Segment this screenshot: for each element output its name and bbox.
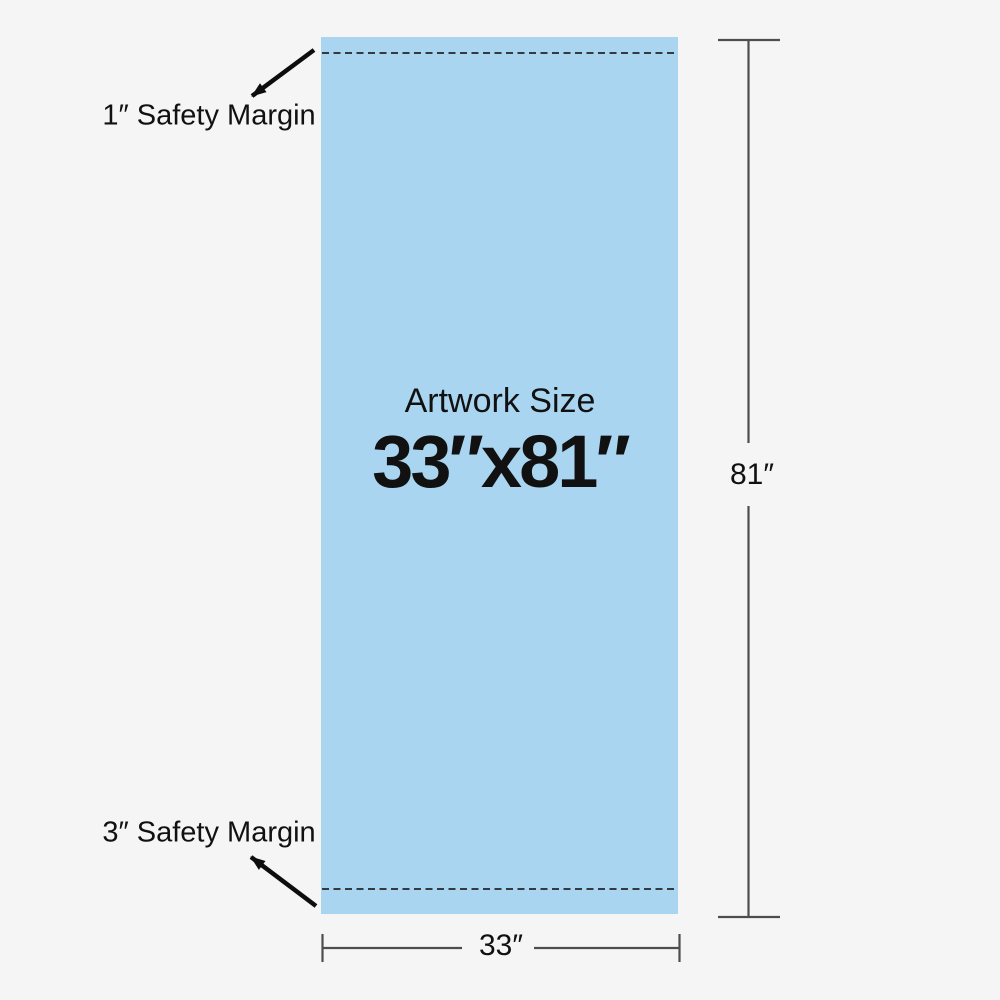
height-dimension-label: 81″ — [730, 460, 774, 490]
top-safety-margin-label: 1″ Safety Margin — [102, 102, 315, 131]
top-margin-arrow — [252, 50, 314, 96]
bottom-margin-arrow — [251, 857, 316, 906]
artwork-title: Artwork Size — [405, 384, 596, 418]
artwork-size-label: 33″x81″ — [372, 425, 628, 499]
width-dimension-label: 33″ — [479, 931, 523, 961]
artwork-template-diagram: Artwork Size 33″x81″ 1″ Safety Margin 3″… — [0, 0, 1000, 1000]
bottom-safety-margin-label: 3″ Safety Margin — [102, 819, 315, 848]
